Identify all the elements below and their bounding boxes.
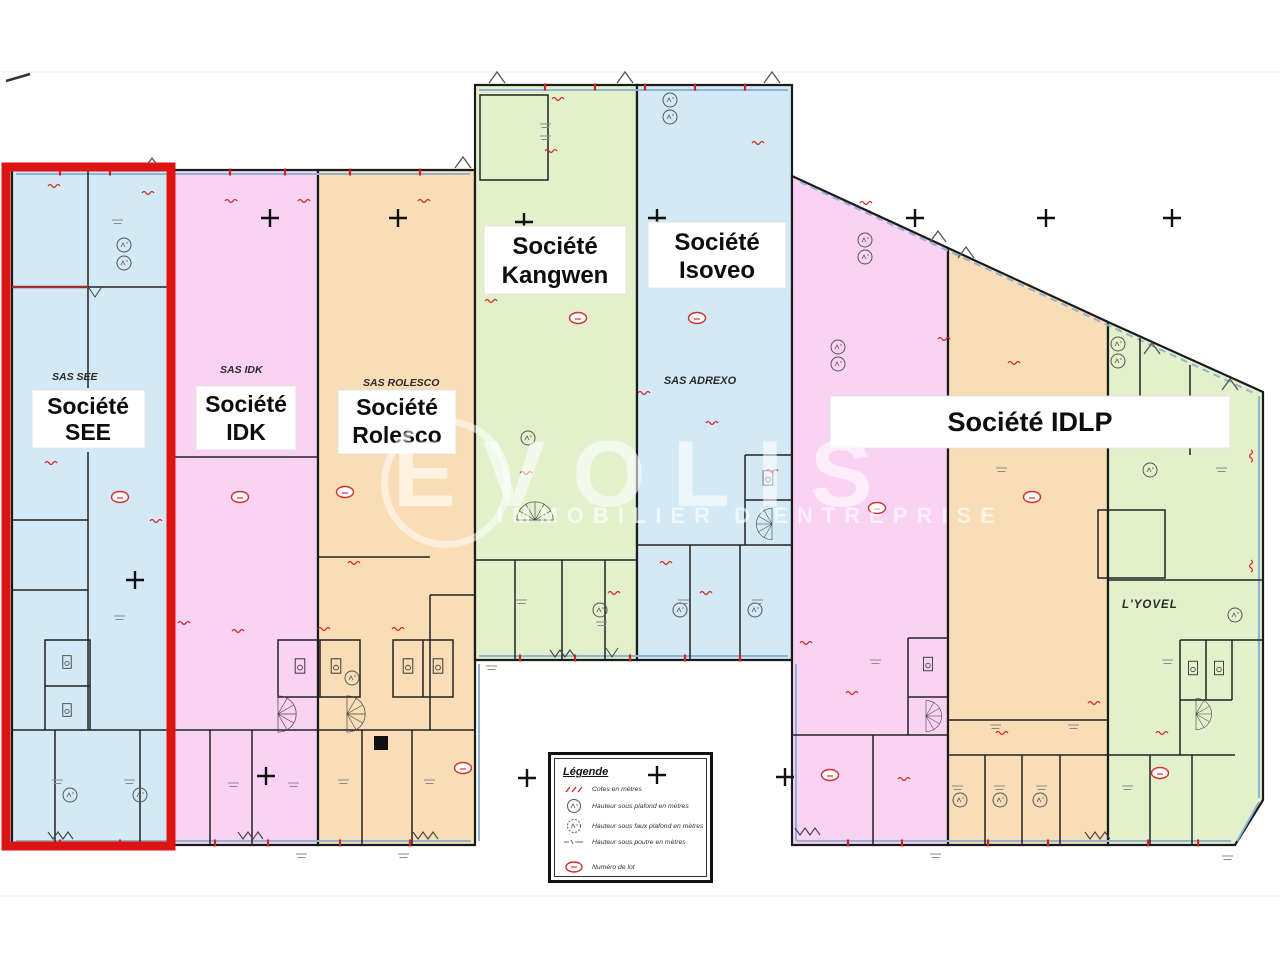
svg-text:Société IDLP: Société IDLP [947, 407, 1112, 437]
sas-adrexo-label: SAS ADREXO [664, 375, 737, 387]
beam-height-icon [563, 838, 585, 846]
svg-text:Société: Société [674, 229, 759, 256]
ceiling-height-icon [563, 798, 585, 814]
floor-plan-page: SAS SEE Société SEE SAS IDK Société IDK … [0, 0, 1280, 960]
zone-societe-see [12, 170, 170, 845]
dimension-mark-icon [563, 784, 585, 794]
svg-text:SEE: SEE [65, 419, 111, 445]
svg-text:IDK: IDK [226, 419, 266, 445]
sas-see-label: SAS SEE [52, 371, 99, 383]
lot-number-icon [563, 860, 585, 874]
zone-societe-isoveo [637, 85, 792, 660]
svg-text:Société: Société [356, 394, 438, 420]
label-societe-kangwen: Société Kangwen [484, 226, 626, 294]
svg-text:Kangwen: Kangwen [502, 262, 609, 289]
sas-idk-label: SAS IDK [220, 364, 264, 376]
pen-mark [6, 74, 30, 81]
svg-text:Société: Société [47, 393, 129, 419]
label-societe-isoveo: Société Isoveo [648, 222, 786, 288]
svg-text:Société: Société [512, 233, 597, 260]
legend-inner: Légende Cotes en mètres Hauteur sous pla… [554, 758, 707, 877]
svg-text:Société: Société [205, 391, 287, 417]
lyovel-label: L'YOVEL [1122, 599, 1178, 611]
zone-societe-kangwen [475, 85, 637, 660]
zone-societe-idk [170, 170, 318, 845]
legend-item: Hauteur sous poutre en mètres [563, 838, 698, 846]
legend: Légende Cotes en mètres Hauteur sous pla… [548, 752, 713, 883]
svg-text:Isoveo: Isoveo [679, 257, 755, 284]
legend-item: Hauteur sous plafond en mètres [563, 798, 698, 814]
legend-item: Hauteur sous faux plafond en mètres [563, 818, 698, 834]
false-ceiling-height-icon [563, 818, 585, 834]
sas-rolesco-label: SAS ROLESCO [363, 377, 439, 389]
watermark-tagline: IMMOBILIER D'ENTREPRISE [497, 503, 1004, 529]
legend-title: Légende [563, 766, 698, 778]
legend-item: Numéro de lot [563, 860, 698, 874]
legend-item: Cotes en mètres [563, 784, 698, 794]
duct-block [374, 736, 388, 750]
